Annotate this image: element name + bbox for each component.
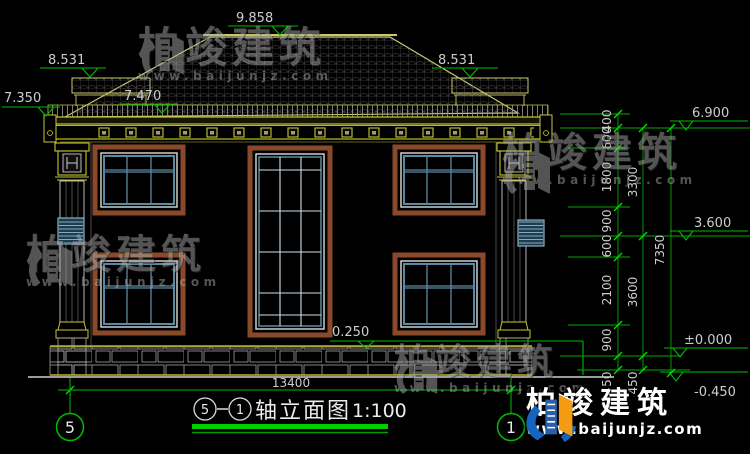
level-zero: ±0.000 bbox=[684, 333, 732, 348]
window-2f-left bbox=[95, 147, 183, 213]
dim-600b: 600 bbox=[600, 235, 614, 258]
level-right-mid: 3.600 bbox=[694, 216, 731, 231]
brand-logo: 柏竣建筑 www.baijunjz.com bbox=[526, 388, 703, 438]
fascia-band bbox=[46, 117, 550, 124]
dim-900b: 900 bbox=[600, 329, 614, 352]
level-eave-inner: 7.470 bbox=[124, 89, 161, 104]
title-underline bbox=[192, 424, 388, 429]
right-wing-roof bbox=[452, 78, 528, 93]
title-name: 轴立面图 bbox=[255, 399, 351, 424]
dim-2100: 2100 bbox=[600, 275, 614, 306]
window-stairwell-center bbox=[250, 148, 330, 335]
dim-900a: 900 bbox=[600, 210, 614, 233]
level-eave-left: 7.350 bbox=[4, 91, 41, 106]
title-scale: 1:100 bbox=[352, 400, 407, 422]
pilaster-right bbox=[497, 143, 531, 375]
drawing-title: 5 1 轴立面图 1:100 bbox=[192, 398, 407, 433]
cornice bbox=[44, 115, 552, 142]
stone-plinth bbox=[50, 346, 532, 375]
level-wing-left: 8.531 bbox=[48, 53, 85, 68]
window-2f-right bbox=[395, 147, 483, 213]
level-ridge: 9.858 bbox=[236, 11, 273, 26]
dim-13400: 13400 bbox=[272, 376, 310, 390]
dim-600a: 600 bbox=[600, 127, 614, 150]
eave-tile-edge bbox=[48, 105, 548, 117]
level-plinth: 0.250 bbox=[332, 325, 369, 340]
eave-bracket-left bbox=[44, 115, 56, 142]
brand-logo-icon bbox=[526, 388, 584, 446]
dim-7350: 7350 bbox=[653, 235, 667, 266]
dim-1800: 1800 bbox=[600, 162, 614, 193]
title-axis-start: 5 bbox=[201, 403, 209, 418]
dentil-row bbox=[98, 126, 534, 140]
axis-label-1: 1 bbox=[506, 418, 516, 437]
level-right-upper: 6.900 bbox=[692, 106, 729, 121]
pilaster-left bbox=[55, 143, 89, 375]
dim-3600: 3600 bbox=[626, 277, 640, 308]
window-1f-left bbox=[95, 255, 183, 333]
window-1f-right bbox=[395, 255, 483, 333]
level-wing-right: 8.531 bbox=[438, 53, 475, 68]
eave-bracket-right bbox=[540, 115, 552, 142]
dim-3300: 3300 bbox=[626, 167, 640, 198]
elevation-drawing-canvas: 9.858 8.531 8.531 7.470 7.350 0.250 6.90… bbox=[0, 0, 750, 454]
title-axis-end: 1 bbox=[236, 403, 244, 418]
louver-vent-left bbox=[58, 218, 84, 244]
axis-label-5: 5 bbox=[65, 418, 75, 437]
louver-vent-right bbox=[518, 220, 544, 246]
hip-roof bbox=[48, 35, 548, 117]
